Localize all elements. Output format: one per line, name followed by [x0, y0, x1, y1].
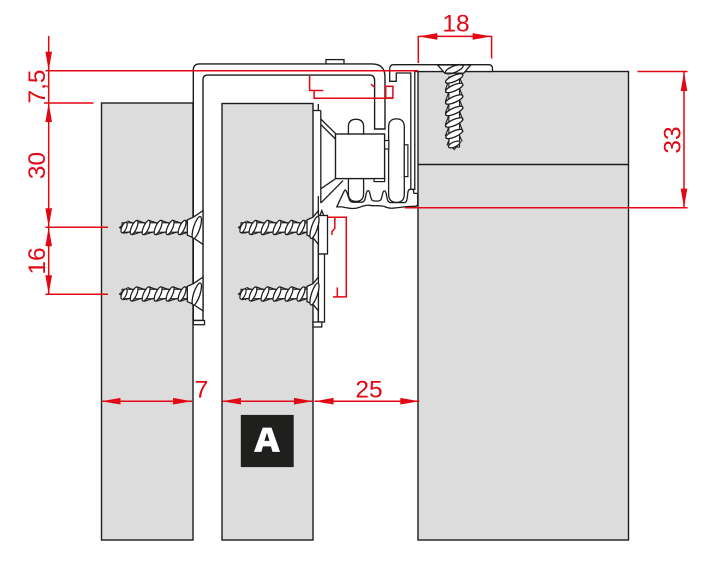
svg-text:33: 33: [660, 126, 687, 153]
svg-text:25: 25: [355, 377, 382, 404]
svg-text:18: 18: [442, 11, 469, 38]
svg-text:16: 16: [24, 247, 51, 274]
svg-text:7: 7: [195, 377, 209, 404]
svg-text:30: 30: [24, 152, 51, 179]
svg-text:7,5: 7,5: [24, 69, 51, 103]
